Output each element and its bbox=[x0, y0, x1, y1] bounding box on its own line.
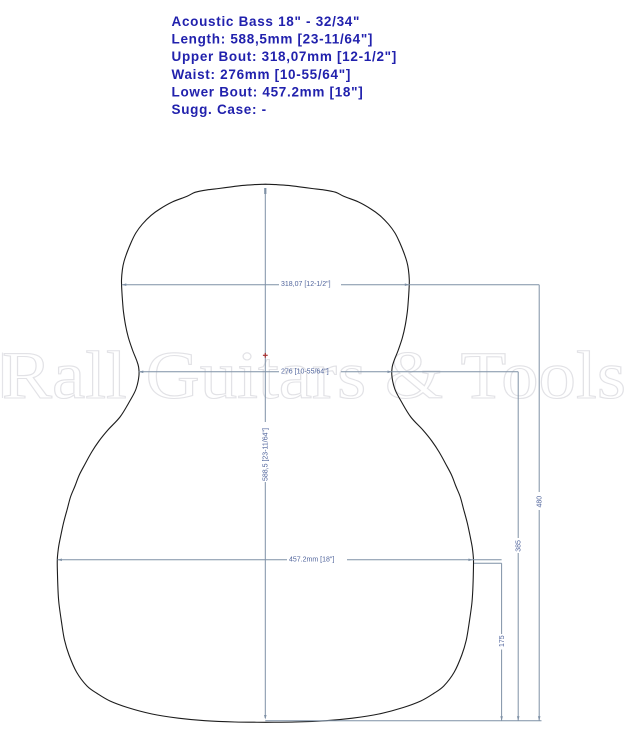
svg-text:Waist: 276mm [10-55/64"]: Waist: 276mm [10-55/64"] bbox=[172, 67, 352, 82]
svg-text:Lower Bout: 457.2mm [18"]: Lower Bout: 457.2mm [18"] bbox=[172, 84, 364, 99]
svg-text:318,07 [12-1/2"]: 318,07 [12-1/2"] bbox=[281, 281, 331, 288]
svg-text:Length: 588,5mm [23-11/64"]: Length: 588,5mm [23-11/64"] bbox=[172, 32, 374, 47]
svg-text:Upper Bout: 318,07mm [12-1/2"]: Upper Bout: 318,07mm [12-1/2"] bbox=[172, 49, 397, 64]
svg-text:385: 385 bbox=[515, 540, 522, 552]
svg-text:175: 175 bbox=[499, 635, 506, 647]
svg-text:457.2mm [18"]: 457.2mm [18"] bbox=[289, 557, 334, 564]
svg-text:Acoustic Bass 18" - 32/34": Acoustic Bass 18" - 32/34" bbox=[172, 14, 361, 29]
svg-text:276 [10-55/64"]: 276 [10-55/64"] bbox=[281, 368, 329, 375]
svg-text:Sugg. Case: -: Sugg. Case: - bbox=[172, 102, 267, 117]
svg-text:588,5 [23-11/64"]: 588,5 [23-11/64"] bbox=[263, 428, 270, 481]
svg-text:480: 480 bbox=[536, 496, 543, 508]
